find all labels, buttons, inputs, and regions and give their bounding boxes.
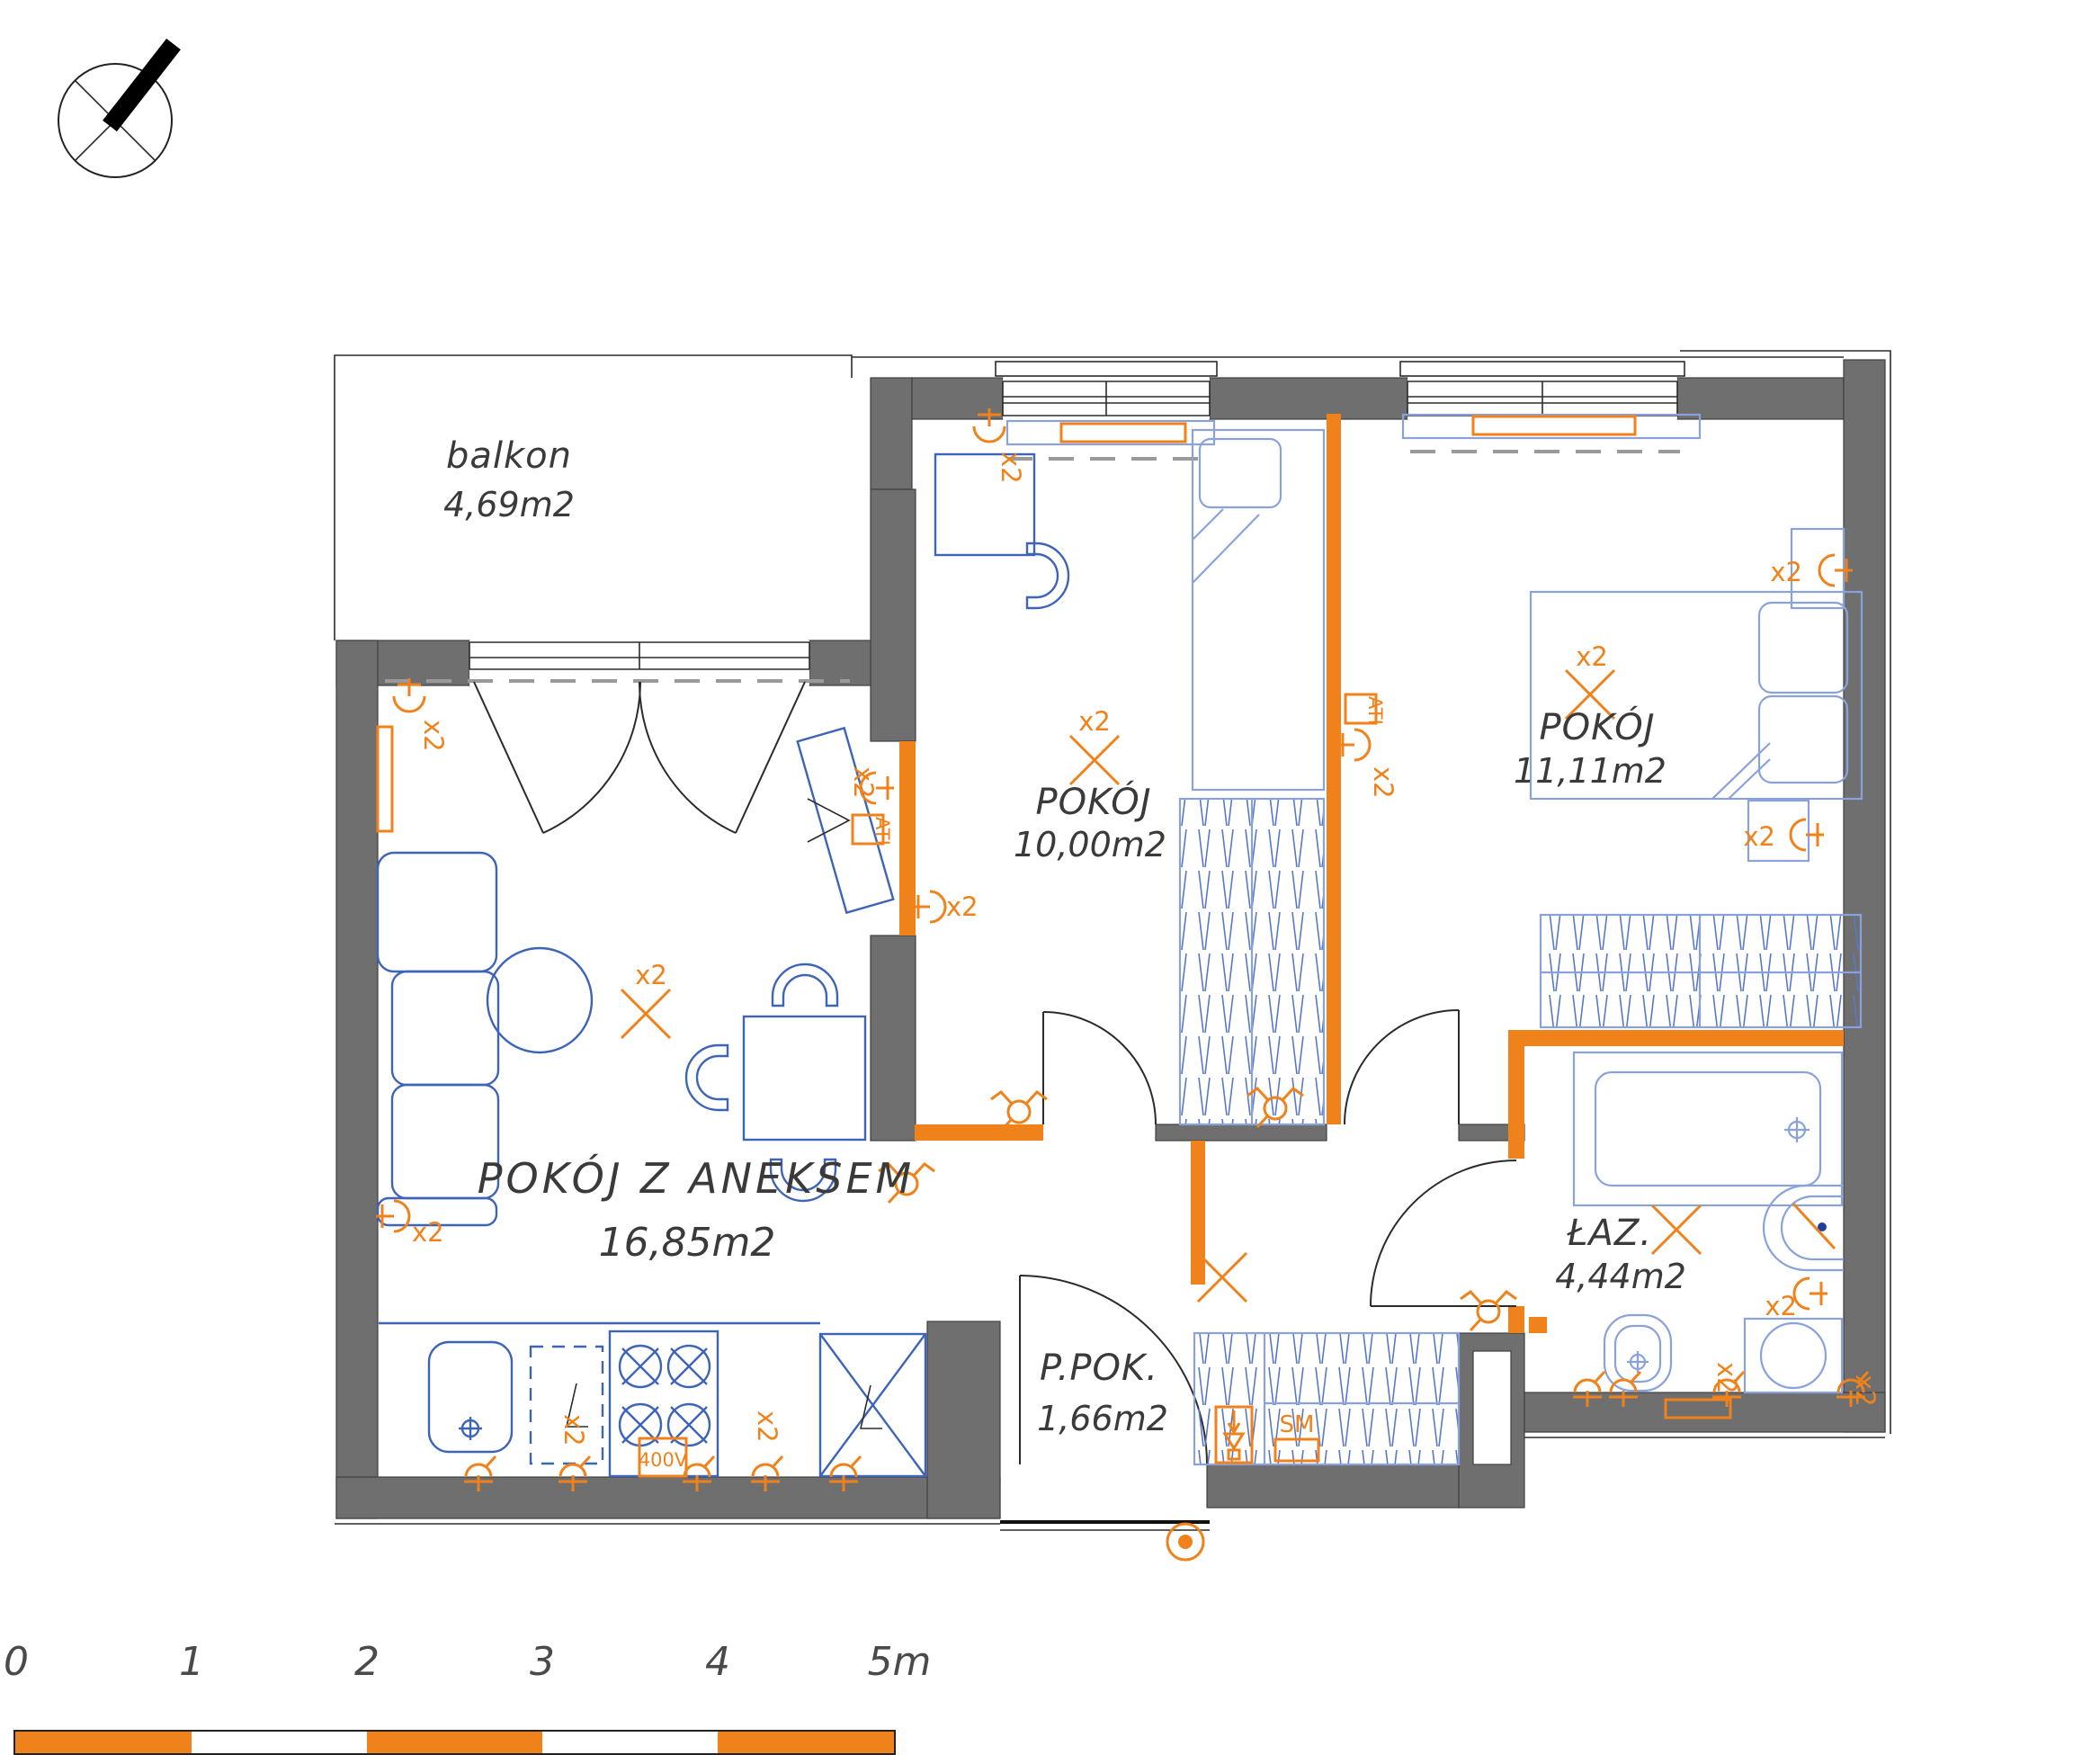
room-label-pokoj10: POKÓJ <box>1035 780 1151 823</box>
wall-light-icon <box>1819 555 1853 586</box>
x2-label: x2 <box>635 960 667 990</box>
wall-segment <box>1677 378 1844 419</box>
wall-light-icon <box>974 408 1005 442</box>
room-label-living: POKÓJ Z ANEKSEM <box>478 1154 915 1203</box>
ati-box: ATI <box>853 815 893 846</box>
fridge <box>820 1334 925 1476</box>
orange-wall-segment <box>1191 1141 1205 1285</box>
bed-single <box>1193 430 1324 790</box>
x2-label: x2 <box>848 766 879 799</box>
window-pokoj10 <box>996 362 1217 459</box>
dining-table <box>744 1016 865 1140</box>
ceiling-light-icon <box>1070 736 1119 784</box>
x2-label: x2 <box>1576 641 1608 672</box>
x2-label: x2 <box>1850 1374 1881 1407</box>
room-label-hall: P.POK. <box>1040 1348 1158 1389</box>
sink <box>429 1342 512 1452</box>
room-label-pokoj11: POKÓJ <box>1539 705 1655 748</box>
washing-machine <box>1745 1319 1842 1392</box>
wall-light-icon <box>376 1201 409 1231</box>
x2-label: x2 <box>1770 557 1802 587</box>
orange-wall-segment <box>1327 414 1341 1124</box>
orange-wall-segment <box>1508 1306 1524 1333</box>
x2-label: x2 <box>559 1414 589 1446</box>
dining-chair <box>686 1045 728 1110</box>
duct-niche <box>1473 1351 1511 1464</box>
coffee-table <box>487 948 592 1052</box>
ati-label: ATI <box>1364 696 1386 725</box>
washbasin <box>1764 1186 1844 1270</box>
wall-segment <box>871 936 916 1141</box>
scale-tick: 5m <box>868 1639 932 1685</box>
wall-segment <box>871 489 916 741</box>
x2-label: x2 <box>1368 766 1399 799</box>
wall-light-icon <box>912 891 945 922</box>
x2-label: x2 <box>946 891 979 922</box>
room-labels: balkon 4,69m2 POKÓJ 10,00m2 POKÓJ 11,11m… <box>443 435 1686 1438</box>
orange-wall-segment <box>1508 1030 1524 1159</box>
wall-left-exterior <box>336 640 378 1518</box>
doorbell-icon <box>1167 1524 1203 1560</box>
wall-light-icon <box>394 678 424 712</box>
room-label-bathroom: ŁAZ. <box>1567 1213 1652 1254</box>
area-label-balkon: 4,69m2 <box>443 485 575 524</box>
floor-plan: x2 x2 x2 x2 x2 x2 x2 x2 x2 x2 x2 x2 x2 x… <box>0 0 2100 1755</box>
scale-tick: 3 <box>530 1639 555 1685</box>
door-pokoj10 <box>1043 1012 1156 1124</box>
wall-light-icon <box>1791 819 1824 850</box>
wall-right-exterior <box>1844 360 1885 1432</box>
area-label-pokoj10: 10,00m2 <box>1014 825 1166 864</box>
furniture <box>378 430 1862 1476</box>
wardrobe-pokoj11 <box>1541 915 1861 1027</box>
x2-label: x2 <box>996 452 1026 484</box>
toilet <box>1604 1315 1671 1391</box>
scale-tick: 0 <box>4 1639 29 1685</box>
door-bathroom <box>1371 1160 1516 1306</box>
orange-walls <box>899 414 1844 1333</box>
x2-label: x2 <box>1078 706 1111 737</box>
ceiling-light-icon <box>621 989 670 1038</box>
window-pokoj11 <box>1400 362 1700 452</box>
orange-wall-segment <box>915 1124 1043 1141</box>
radiator <box>378 727 392 831</box>
x2-label: x2 <box>412 1217 444 1248</box>
scale-tick: 4 <box>705 1639 730 1685</box>
x2-label: x2 <box>418 720 449 752</box>
wardrobe-pokoj10 <box>1180 799 1324 1124</box>
area-label-living: 16,85m2 <box>599 1220 776 1266</box>
wall-segment <box>871 378 912 489</box>
x2-label: x2 <box>1711 1362 1742 1394</box>
x2-label: x2 <box>752 1410 782 1443</box>
wall-pier <box>927 1321 1000 1518</box>
sm-label: SM <box>1280 1411 1315 1438</box>
wall-segment <box>1156 1124 1327 1141</box>
radiator <box>1061 424 1185 442</box>
ati-label: ATI <box>871 817 893 846</box>
scale-bar: 0 1 2 3 4 5m <box>4 1639 931 1754</box>
hall-closet <box>1194 1333 1459 1464</box>
orange-junction-box <box>1529 1317 1547 1333</box>
wall-light-icon <box>1794 1278 1827 1309</box>
area-label-bathroom: 4,44m2 <box>1555 1257 1686 1296</box>
wall-segment <box>1207 1464 1459 1508</box>
ceiling-light-icon <box>1198 1253 1247 1302</box>
compass-icon <box>58 44 174 177</box>
scale-tick: 2 <box>354 1639 380 1685</box>
switch-icon <box>1461 1292 1516 1330</box>
ceiling-light-icon <box>1652 1205 1701 1254</box>
area-label-pokoj11: 11,11m2 <box>1514 751 1667 791</box>
400v-label: 400V <box>639 1449 688 1471</box>
room-label-balkon: balkon <box>446 435 572 477</box>
wall-segment <box>1210 378 1407 419</box>
ati-box: ATI <box>1345 694 1386 725</box>
wall-light-icon <box>1336 730 1370 760</box>
bathtub <box>1574 1052 1842 1205</box>
scale-tick: 1 <box>179 1639 204 1685</box>
area-label-hall: 1,66m2 <box>1037 1399 1168 1438</box>
x2-label: x2 <box>1765 1291 1797 1321</box>
orange-wall-segment <box>1508 1030 1844 1046</box>
wall-bottom-exterior <box>336 1477 1000 1518</box>
x2-label: x2 <box>1743 821 1775 852</box>
dining-chair <box>773 964 837 1006</box>
door-pokoj11 <box>1345 1010 1459 1124</box>
